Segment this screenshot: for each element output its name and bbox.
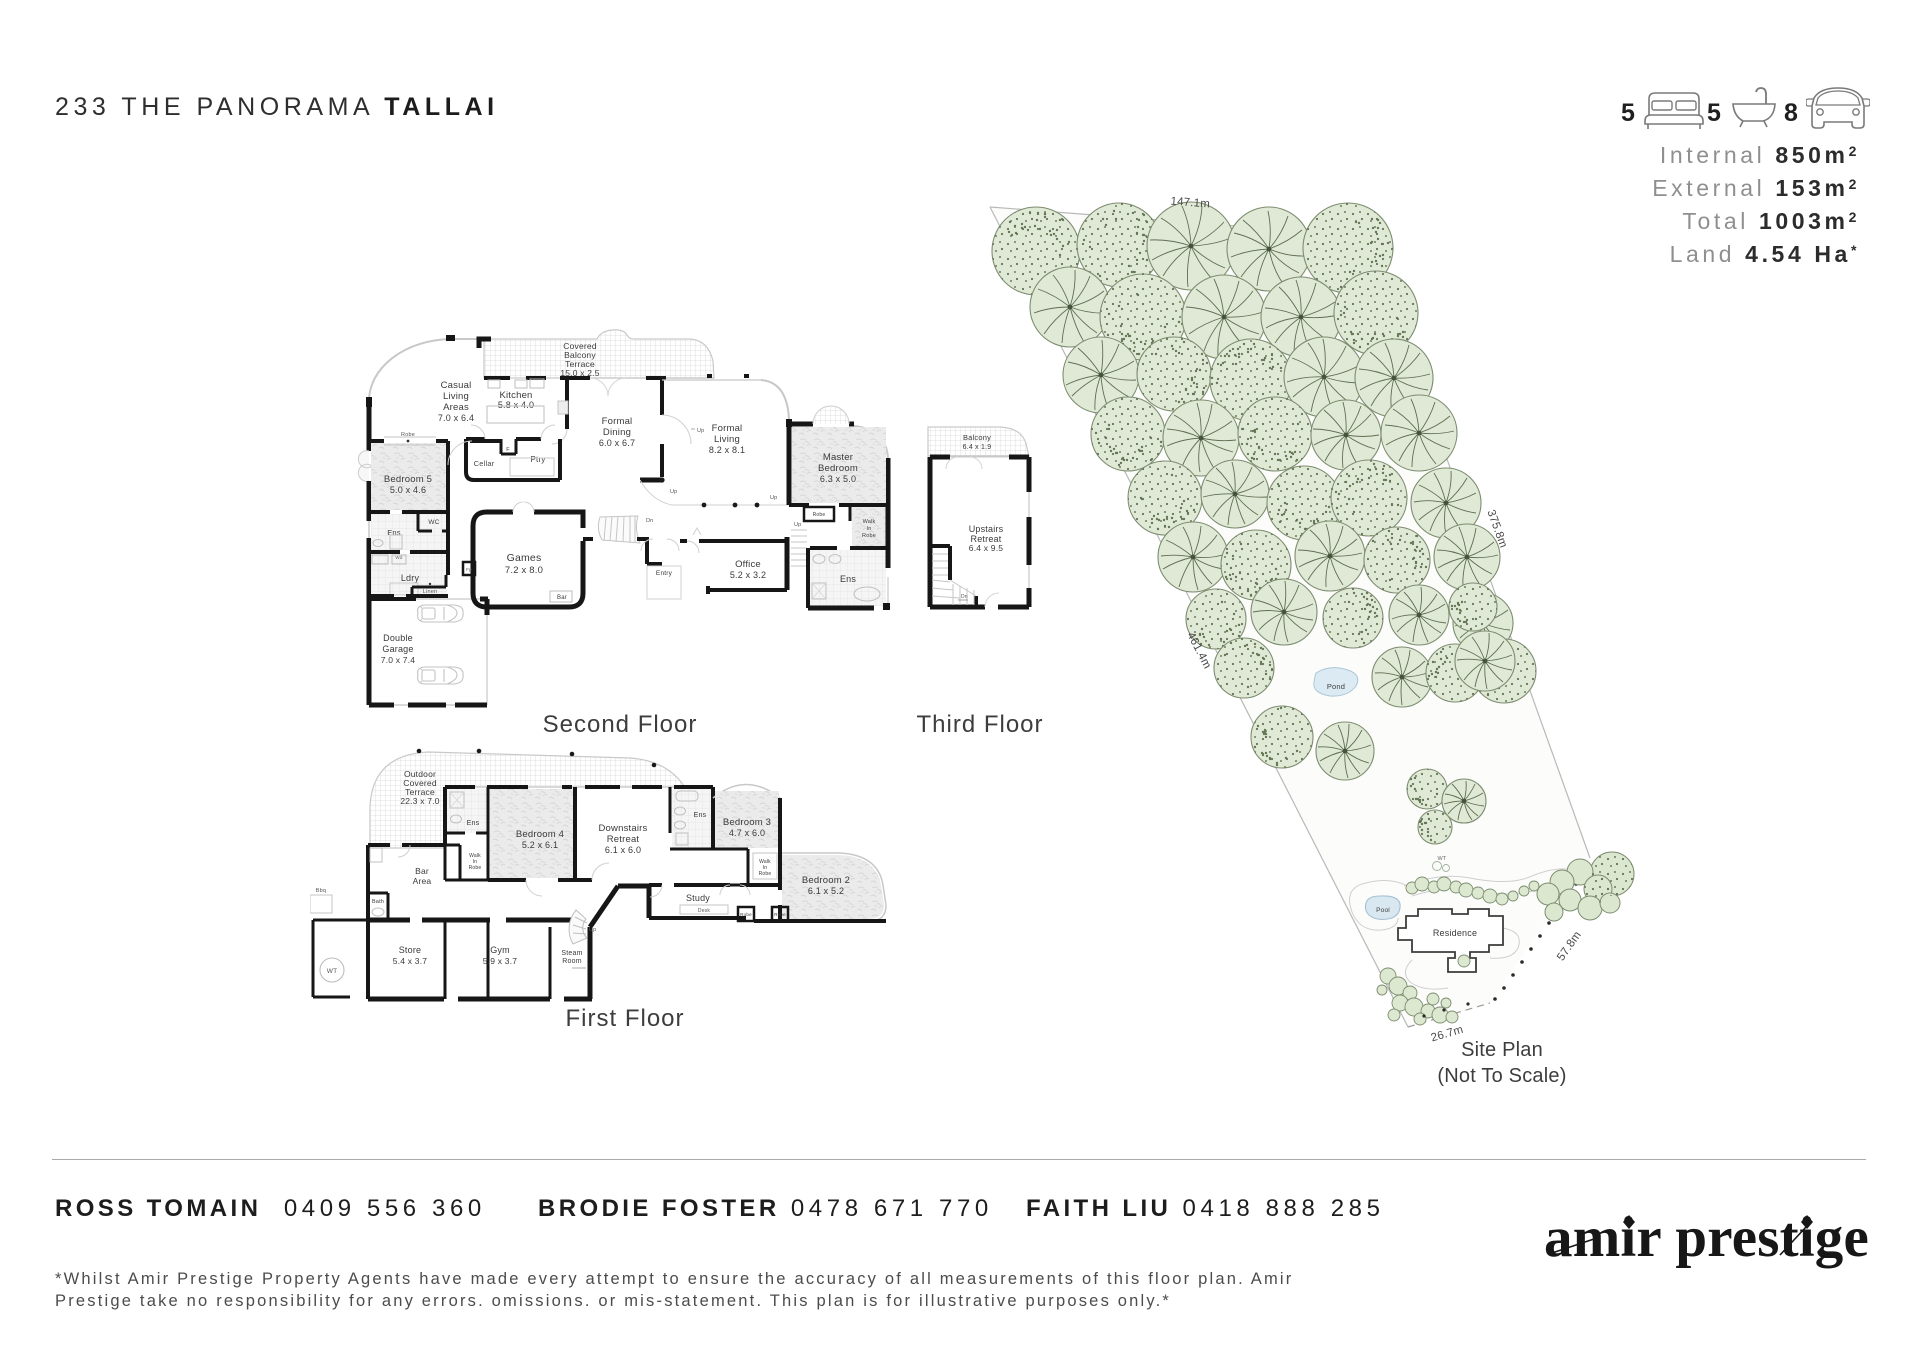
svg-text:Dining: Dining <box>603 427 631 438</box>
svg-text:Office: Office <box>735 559 761 570</box>
svg-text:WC: WC <box>428 519 439 526</box>
svg-text:7.0 x 7.4: 7.0 x 7.4 <box>381 655 415 665</box>
svg-text:5.0 x 4.6: 5.0 x 4.6 <box>390 485 426 495</box>
svg-text:Up: Up <box>670 489 677 495</box>
svg-text:Master: Master <box>823 452 853 463</box>
svg-text:6.0 x 6.7: 6.0 x 6.7 <box>599 438 635 448</box>
svg-text:6.1 x 5.2: 6.1 x 5.2 <box>808 886 844 896</box>
svg-text:Study: Study <box>686 893 710 903</box>
svg-text:5.9 x 3.7: 5.9 x 3.7 <box>483 956 517 966</box>
svg-text:Gym: Gym <box>490 945 510 955</box>
svg-text:Pool: Pool <box>1376 907 1390 914</box>
svg-text:Formal: Formal <box>712 423 743 434</box>
svg-text:4.7 x 6.0: 4.7 x 6.0 <box>729 828 765 838</box>
svg-text:7.2 x 8.0: 7.2 x 8.0 <box>505 565 543 576</box>
svg-text:Formal: Formal <box>602 416 633 427</box>
svg-text:Robe: Robe <box>469 865 482 871</box>
svg-text:Site Plan: Site Plan <box>1461 1039 1543 1061</box>
svg-text:Walk: Walk <box>863 519 876 525</box>
svg-text:Residence: Residence <box>1433 928 1477 938</box>
svg-text:Robe: Robe <box>813 512 826 518</box>
svg-text:Store: Store <box>399 945 422 955</box>
svg-text:Dn: Dn <box>646 518 653 524</box>
svg-text:Ldry: Ldry <box>401 573 420 583</box>
svg-text:Bedroom 3: Bedroom 3 <box>723 817 771 828</box>
svg-text:Living: Living <box>714 434 740 445</box>
svg-text:5.2 x 3.2: 5.2 x 3.2 <box>730 570 766 580</box>
svg-text:Bedroom: Bedroom <box>818 463 858 474</box>
svg-text:Bedroom 5: Bedroom 5 <box>384 474 432 485</box>
svg-text:Area: Area <box>413 876 432 886</box>
svg-text:26.7m: 26.7m <box>1430 1024 1465 1045</box>
svg-text:Ens: Ens <box>694 812 707 819</box>
svg-text:Up: Up <box>589 927 596 933</box>
svg-text:Up: Up <box>794 522 801 528</box>
svg-text:22.3 x 7.0: 22.3 x 7.0 <box>400 796 439 806</box>
svg-text:Ens: Ens <box>387 528 401 537</box>
svg-text:5.4 x 3.7: 5.4 x 3.7 <box>393 956 427 966</box>
svg-text:Cellar: Cellar <box>474 459 495 468</box>
svg-text:Double: Double <box>383 633 413 643</box>
svg-text:8.2 x 8.1: 8.2 x 8.1 <box>709 445 745 455</box>
svg-text:Up: Up <box>770 495 777 501</box>
svg-text:Garage: Garage <box>382 644 413 654</box>
svg-text:Bar: Bar <box>415 866 429 876</box>
svg-text:57.8m: 57.8m <box>1555 929 1584 963</box>
svg-text:Robe: Robe <box>401 432 415 438</box>
svg-text:Wd: Wd <box>395 555 402 560</box>
svg-text:Bedroom 2: Bedroom 2 <box>802 875 850 886</box>
svg-text:5.8 x 4.0: 5.8 x 4.0 <box>498 400 534 410</box>
svg-text:WT: WT <box>1438 856 1447 862</box>
svg-text:Robe: Robe <box>862 533 876 539</box>
svg-text:Ptry: Ptry <box>530 455 545 464</box>
svg-text:Ens: Ens <box>467 820 480 827</box>
svg-text:6.1 x 6.0: 6.1 x 6.0 <box>605 845 641 855</box>
svg-text:Pond: Pond <box>1327 682 1345 691</box>
svg-text:Casual: Casual <box>441 380 472 391</box>
svg-text:Desk: Desk <box>698 908 710 914</box>
svg-text:In: In <box>867 526 872 532</box>
svg-text:Robe: Robe <box>759 871 772 877</box>
svg-text:Robe: Robe <box>774 912 786 917</box>
svg-text:7.0 x 6.4: 7.0 x 6.4 <box>438 413 474 423</box>
svg-text:(Not To Scale): (Not To Scale) <box>1437 1065 1566 1087</box>
svg-text:WT: WT <box>327 968 338 975</box>
svg-text:Bbq: Bbq <box>316 888 326 894</box>
svg-text:Up: Up <box>697 428 704 434</box>
svg-text:Living: Living <box>443 391 469 402</box>
svg-text:Entry: Entry <box>656 570 673 577</box>
svg-text:F: F <box>506 447 510 453</box>
svg-text:6.3 x 5.0: 6.3 x 5.0 <box>820 474 856 484</box>
svg-text:Retreat: Retreat <box>607 834 640 845</box>
svg-text:Bedroom 4: Bedroom 4 <box>516 829 564 840</box>
svg-text:Room: Room <box>562 958 581 965</box>
svg-text:5.2 x 6.1: 5.2 x 6.1 <box>522 840 558 850</box>
svg-text:Ens: Ens <box>840 574 856 584</box>
svg-text:Areas: Areas <box>443 402 469 413</box>
svg-text:Downstairs: Downstairs <box>599 823 648 834</box>
svg-text:Bath: Bath <box>372 899 384 905</box>
svg-text:Bar: Bar <box>557 595 567 601</box>
svg-text:Games: Games <box>507 552 542 564</box>
svg-text:Steam: Steam <box>561 950 582 957</box>
svg-text:Fp: Fp <box>466 567 472 572</box>
